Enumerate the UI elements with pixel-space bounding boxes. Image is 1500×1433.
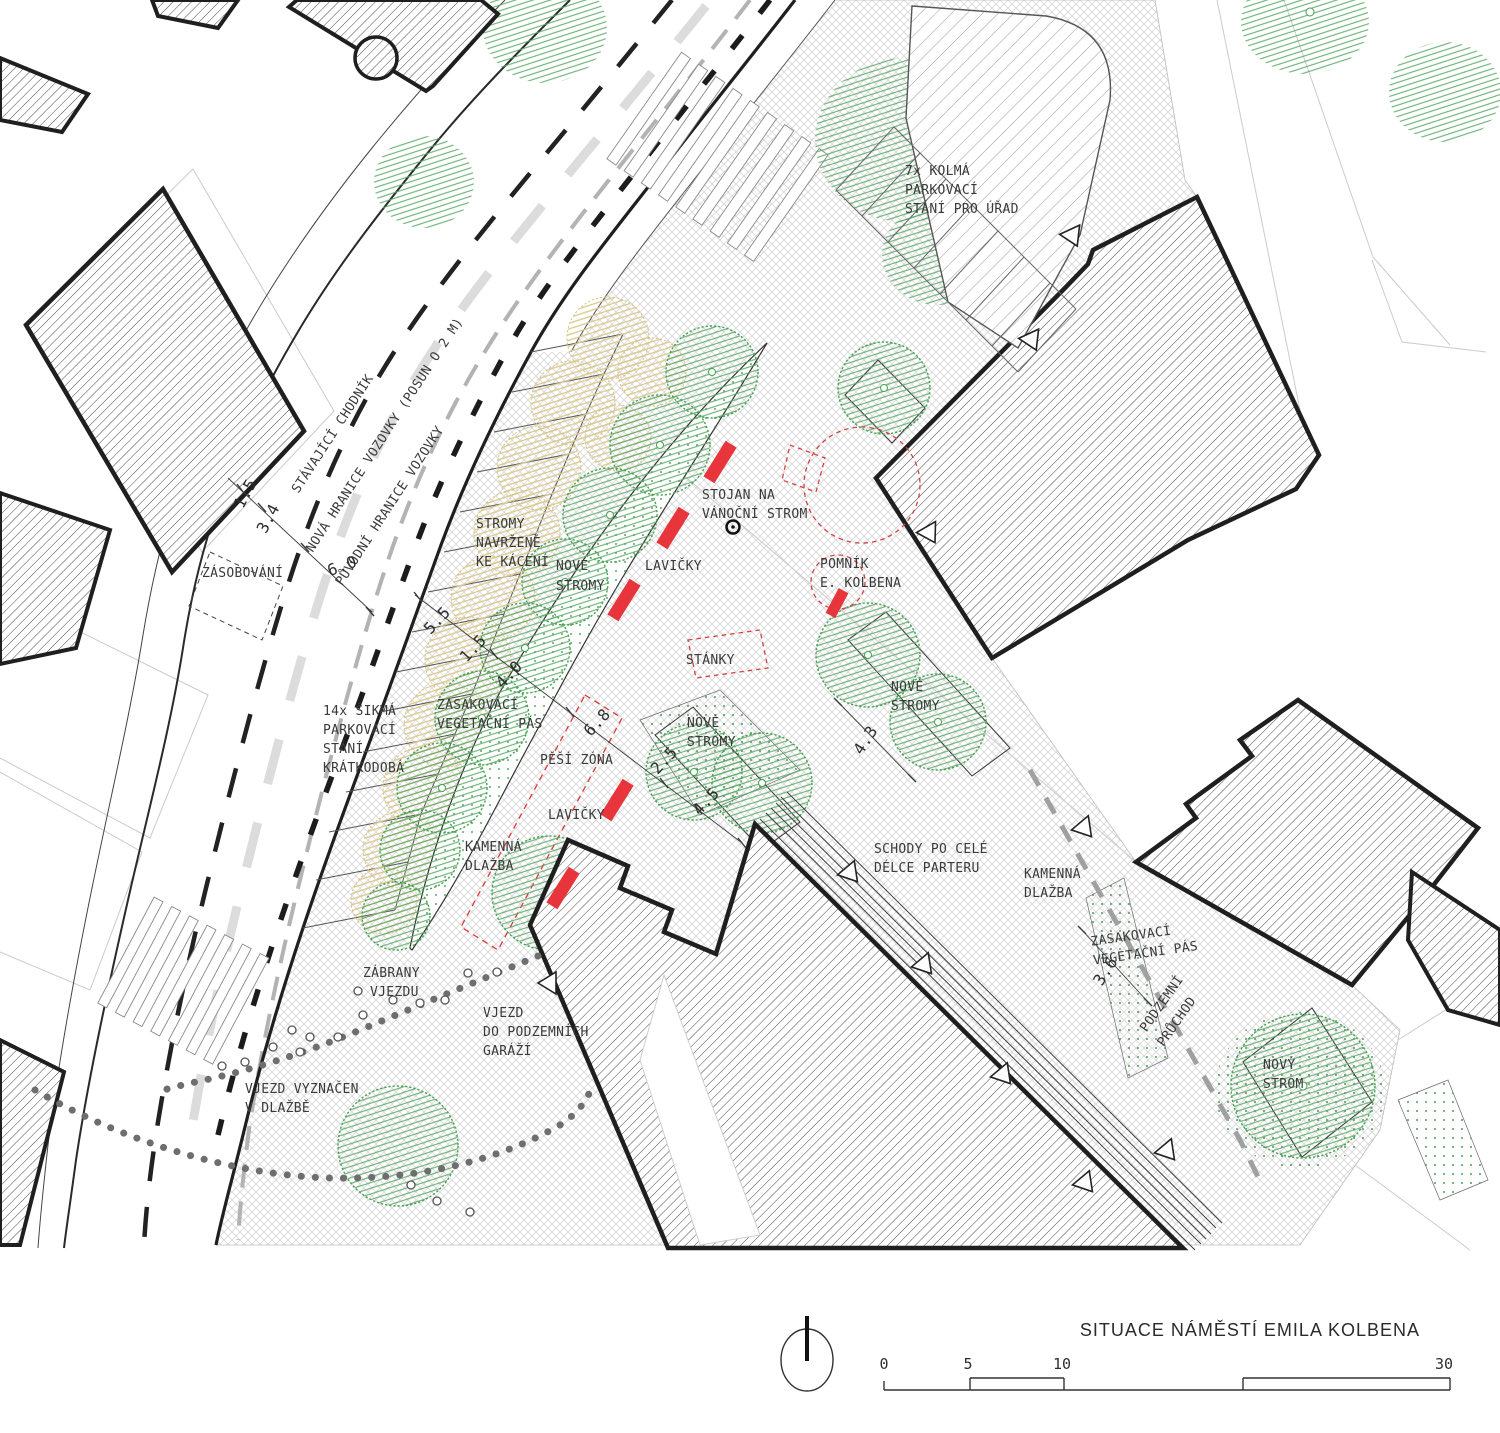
label-nove-stromy-2: STROMY bbox=[687, 735, 736, 750]
label-nove-stromy-3: NOVÉ bbox=[891, 679, 924, 695]
label-nove-stromy-2: NOVÉ bbox=[687, 715, 720, 731]
dim-3-4: 3.4 bbox=[253, 501, 284, 537]
label-schody: SCHODY PO CELÉ bbox=[874, 841, 988, 857]
label-stanky: STÁNKY bbox=[686, 652, 735, 668]
building-bottom-left bbox=[0, 1040, 64, 1245]
label-novy-strom: NOVÝ bbox=[1263, 1057, 1296, 1073]
label-kamenna-2: KAMENNÁ bbox=[1024, 866, 1081, 882]
scale-bar bbox=[884, 1378, 1450, 1390]
label-stromy-kaceni: STROMY bbox=[476, 517, 525, 532]
label-lavicky-1: LAVIČKY bbox=[645, 558, 702, 574]
label-zasakovaci-1: ZASAKOVACÍ bbox=[437, 697, 518, 713]
drawing-title: SITUACE NÁMĚSTÍ EMILA KOLBENA bbox=[1080, 1320, 1420, 1340]
map-area: STÁVAJÍCÍ CHODNÍK NOVÁ HRANICE VOZOVKY (… bbox=[0, 0, 1500, 1250]
label-stromy-kaceni: NAVRŽENÉ bbox=[476, 535, 541, 551]
label-parking-14: PARKOVACÍ bbox=[323, 722, 396, 738]
label-vjezd-dlazba: VJEZD VYZNAČEN bbox=[245, 1081, 359, 1097]
label-parking-7: STÁNÍ PRO ÚŘAD bbox=[905, 201, 1019, 217]
existing-tree-trunk bbox=[1306, 8, 1314, 16]
label-pesi-zona: PĚŠÍ ZÓNA bbox=[540, 752, 613, 768]
label-novy-strom: STROM bbox=[1263, 1077, 1304, 1092]
label-zabrany: ZÁBRANY bbox=[363, 965, 420, 981]
label-vjezd-garaze: GARÁŽÍ bbox=[483, 1043, 532, 1059]
label-vjezd-garaze: DO PODZEMNÍCH bbox=[483, 1024, 589, 1040]
label-zabrany: VJEZDU bbox=[370, 985, 419, 1000]
label-stromy-kaceni: KE KÁCENÍ bbox=[476, 554, 549, 570]
label-kamenna-1: DLAŽBA bbox=[465, 858, 514, 874]
label-kamenna-2: DLAŽBA bbox=[1024, 885, 1073, 901]
label-zasobovani: ZÁSOBOVÁNÍ bbox=[202, 565, 283, 581]
label-zasakovaci-1: VEGETAČNÍ PÁS bbox=[437, 716, 543, 732]
label-parking-7: PARKOVACÍ bbox=[905, 182, 978, 198]
label-parking-14: KRÁTKODOBÁ bbox=[323, 760, 404, 776]
scale-0: 0 bbox=[879, 1355, 888, 1373]
scale-5: 5 bbox=[963, 1355, 972, 1373]
label-parking-14: 14x ŠIKMÁ bbox=[323, 703, 396, 719]
label-parking-7: 7x KOLMÁ bbox=[905, 163, 970, 179]
label-pomnik: POMNÍK bbox=[820, 556, 869, 572]
label-schody: DÉLCE PARTERU bbox=[874, 860, 980, 876]
label-kamenna-1: KAMENNÁ bbox=[465, 839, 522, 855]
label-pomnik: E. KOLBENA bbox=[820, 576, 901, 591]
label-lavicky-2: LAVIČKY bbox=[548, 807, 605, 823]
label-nove-stromy-3: STROMY bbox=[891, 699, 940, 714]
building-top-center-lobe bbox=[355, 37, 397, 79]
label-vjezd-garaze: VJEZD bbox=[483, 1006, 524, 1021]
scale-10: 10 bbox=[1053, 1355, 1071, 1373]
site-plan-drawing: STÁVAJÍCÍ CHODNÍK NOVÁ HRANICE VOZOVKY (… bbox=[0, 0, 1500, 1433]
label-nove-stromy-1: NOVÉ bbox=[556, 558, 589, 574]
scale-30: 30 bbox=[1435, 1355, 1453, 1373]
label-nove-stromy-1: STROMY bbox=[556, 579, 605, 594]
building-corner-top-left bbox=[152, 0, 238, 28]
building-left-edge bbox=[0, 58, 88, 132]
label-stojan: STOJAN NA bbox=[702, 488, 775, 503]
label-parking-14: STÁNÍ bbox=[323, 741, 364, 757]
label-stojan: VÁNOČNÍ STROM bbox=[702, 506, 808, 522]
north-arrow bbox=[781, 1316, 833, 1391]
label-vjezd-dlazba: V DLAŽBĚ bbox=[245, 1100, 310, 1116]
building-right-edge-bottom bbox=[1408, 872, 1500, 1025]
dim-6-0: 6.0 bbox=[325, 552, 360, 580]
site-plan-page: STÁVAJÍCÍ CHODNÍK NOVÁ HRANICE VOZOVKY (… bbox=[0, 0, 1500, 1433]
scale-bar-labels: 0 5 10 30 bbox=[879, 1355, 1453, 1373]
legend: SITUACE NÁMĚSTÍ EMILA KOLBENA 0 5 10 30 bbox=[781, 1316, 1453, 1391]
